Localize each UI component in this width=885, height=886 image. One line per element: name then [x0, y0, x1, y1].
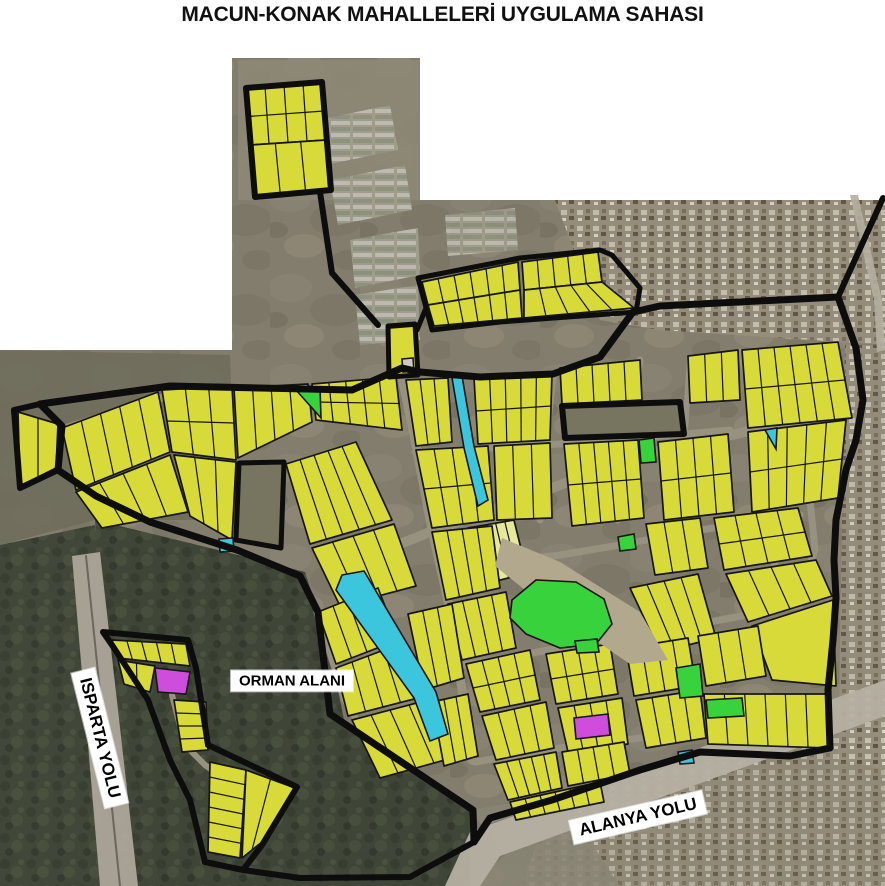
special-parcel [155, 668, 190, 694]
park-parcel [639, 438, 656, 463]
parcel-block [494, 443, 552, 520]
special-parcel [574, 714, 610, 739]
park-parcel [706, 698, 744, 718]
parcel-block [688, 350, 740, 403]
park-parcel [618, 534, 636, 551]
park-parcel [575, 639, 599, 653]
zoning-map: ISPARTA YOLUORMAN ALANIALANYA YOLU [0, 0, 885, 886]
park-parcel [676, 664, 703, 698]
parcel-block [646, 518, 708, 575]
parcel-block [698, 626, 766, 686]
zoning-map-canvas [0, 0, 885, 886]
greenhouse-patch [445, 208, 518, 256]
parcel-block [748, 420, 846, 512]
excluded-parcel [236, 462, 284, 548]
parcel-block [564, 440, 644, 526]
parcel-block [636, 690, 706, 748]
map-title: MACUN-KONAK MAHALLELERİ UYGULAMA SAHASI [0, 3, 885, 27]
excluded-parcel [562, 402, 684, 438]
